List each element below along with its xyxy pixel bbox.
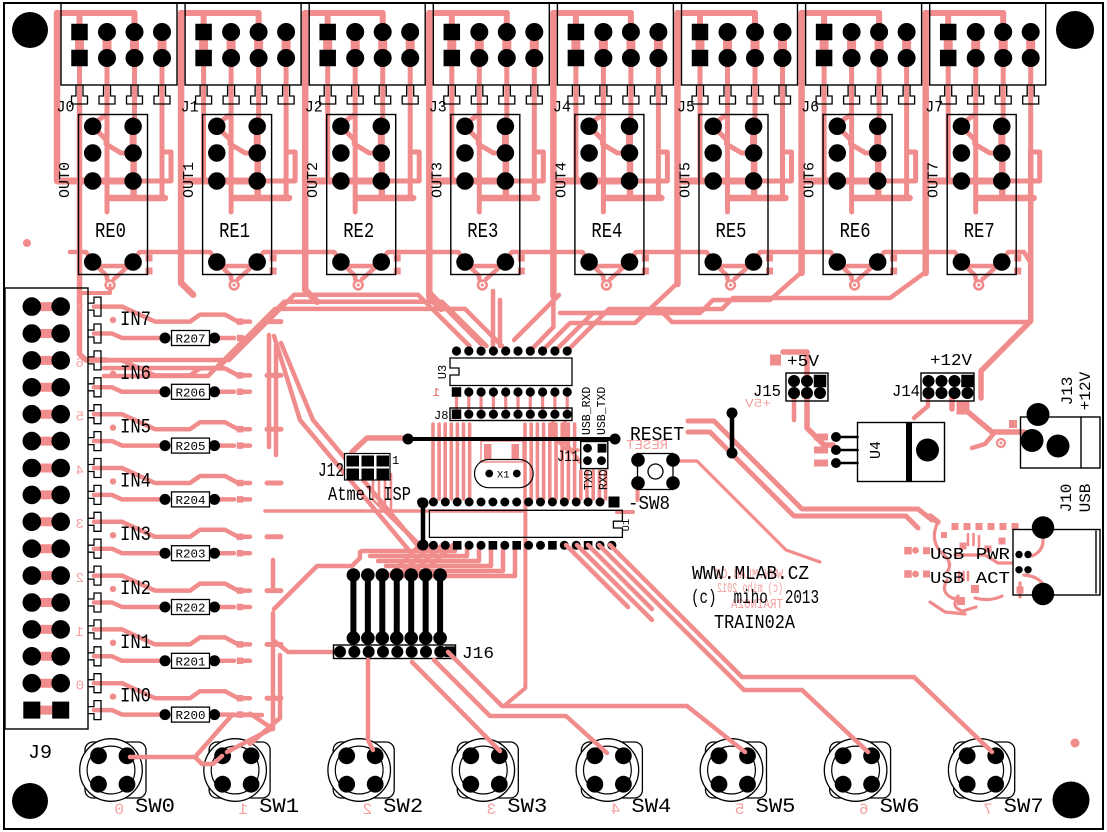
svg-text:R200: R200 [176, 710, 206, 723]
svg-text:RE6: RE6 [840, 221, 871, 244]
svg-text:+5V: +5V [787, 353, 820, 372]
svg-text:IN5: IN5 [120, 417, 151, 440]
svg-text:IN7: IN7 [120, 309, 151, 332]
svg-text:+12V: +12V [1077, 371, 1095, 410]
svg-text:R202: R202 [176, 603, 206, 616]
svg-text:J2: J2 [305, 99, 323, 117]
svg-text:J11: J11 [557, 448, 579, 466]
svg-text:IN0: IN0 [120, 686, 151, 709]
svg-text:3: 3 [487, 801, 497, 819]
svg-text:USB_RXD: USB_RXD [581, 387, 594, 435]
svg-text:+12V: +12V [930, 352, 973, 371]
svg-text:1: 1 [76, 625, 84, 641]
svg-text:4: 4 [76, 463, 84, 479]
svg-text:USB_TXD: USB_TXD [596, 387, 609, 435]
svg-text:J16: J16 [462, 645, 494, 664]
svg-text:J9: J9 [28, 742, 52, 764]
svg-text:R203: R203 [176, 549, 206, 562]
svg-text:J14: J14 [892, 383, 920, 402]
svg-text:R207: R207 [176, 334, 206, 347]
svg-text:SW3: SW3 [507, 796, 547, 819]
svg-text:1: 1 [392, 454, 399, 468]
svg-text:5: 5 [735, 801, 745, 819]
svg-text:SW5: SW5 [756, 796, 796, 819]
svg-text:RE0: RE0 [95, 221, 126, 244]
svg-text:X1: X1 [497, 470, 510, 482]
svg-text:R205: R205 [176, 441, 206, 454]
svg-text:5: 5 [76, 410, 84, 426]
svg-text:IN6: IN6 [120, 363, 151, 386]
svg-text:J13: J13 [1059, 377, 1077, 406]
svg-text:J12: J12 [318, 460, 344, 482]
svg-text:(c) miho 2013: (c) miho 2013 [691, 587, 819, 609]
svg-text:J6: J6 [801, 99, 819, 117]
svg-text:OUT2: OUT2 [305, 162, 322, 198]
svg-text:6: 6 [859, 801, 869, 819]
svg-text:J3: J3 [429, 99, 447, 117]
svg-text:IN4: IN4 [120, 470, 151, 493]
svg-text:RE2: RE2 [343, 221, 374, 244]
svg-text:3: 3 [76, 517, 84, 533]
svg-text:R206: R206 [176, 387, 206, 400]
svg-text:OUT4: OUT4 [553, 162, 570, 198]
svg-text:7: 7 [983, 801, 993, 819]
svg-text:SW2: SW2 [383, 796, 423, 819]
svg-text:2: 2 [76, 571, 84, 587]
svg-text:U1: U1 [621, 519, 633, 532]
svg-text:J1: J1 [181, 99, 199, 117]
svg-text:J7: J7 [925, 99, 943, 117]
svg-text:J10: J10 [1058, 484, 1076, 513]
svg-text:RESET: RESET [630, 424, 684, 446]
svg-text:J0: J0 [57, 99, 75, 117]
svg-text:RE3: RE3 [467, 221, 498, 244]
svg-text:USB: USB [1077, 484, 1095, 513]
svg-text:U4: U4 [868, 441, 885, 459]
svg-text:OUT3: OUT3 [429, 162, 446, 198]
svg-text:SW1: SW1 [259, 796, 299, 819]
svg-text:IN2: IN2 [120, 578, 151, 601]
svg-text:7: 7 [76, 302, 84, 318]
svg-text:OUT0: OUT0 [57, 162, 74, 198]
svg-text:RE1: RE1 [219, 221, 250, 244]
svg-text:J8: J8 [434, 409, 448, 423]
svg-text:2: 2 [363, 801, 373, 819]
svg-text:R204: R204 [176, 495, 206, 508]
svg-text:SW7: SW7 [1004, 796, 1044, 819]
svg-text:RE5: RE5 [716, 221, 747, 244]
svg-text:TXD: TXD [583, 469, 596, 490]
svg-text:SW0: SW0 [135, 796, 175, 819]
svg-text:OUT1: OUT1 [181, 162, 198, 198]
svg-text:WWW.MLAB.CZ: WWW.MLAB.CZ [692, 563, 809, 585]
svg-text:OUT7: OUT7 [926, 162, 943, 198]
svg-text:U3: U3 [436, 365, 450, 379]
svg-text:RE4: RE4 [591, 221, 622, 244]
svg-text:OUT5: OUT5 [678, 162, 695, 198]
svg-text:6: 6 [76, 356, 84, 372]
svg-text:RXD: RXD [598, 469, 611, 490]
svg-text:Atmel ISP: Atmel ISP [328, 484, 411, 506]
svg-text:1: 1 [238, 801, 248, 819]
svg-text:SW6: SW6 [880, 796, 920, 819]
svg-text:OUT6: OUT6 [802, 162, 819, 198]
svg-text:-SW8: -SW8 [628, 493, 670, 515]
svg-text:1: 1 [433, 386, 440, 400]
svg-text:USB ACT: USB ACT [930, 570, 1010, 589]
svg-text:R201: R201 [176, 656, 206, 669]
svg-text:0: 0 [76, 679, 84, 695]
svg-text:USB PWR: USB PWR [930, 546, 1010, 565]
svg-text:IN1: IN1 [120, 632, 151, 655]
svg-text:J15: J15 [753, 383, 781, 402]
svg-text:J4: J4 [553, 99, 571, 117]
svg-text:0: 0 [114, 801, 124, 819]
svg-text:J5: J5 [677, 99, 695, 117]
svg-text:SW4: SW4 [631, 796, 671, 819]
svg-text:TRAIN02A: TRAIN02A [714, 612, 796, 634]
svg-text:4: 4 [611, 801, 621, 819]
svg-text:RE7: RE7 [964, 221, 995, 244]
svg-text:IN3: IN3 [120, 524, 151, 547]
